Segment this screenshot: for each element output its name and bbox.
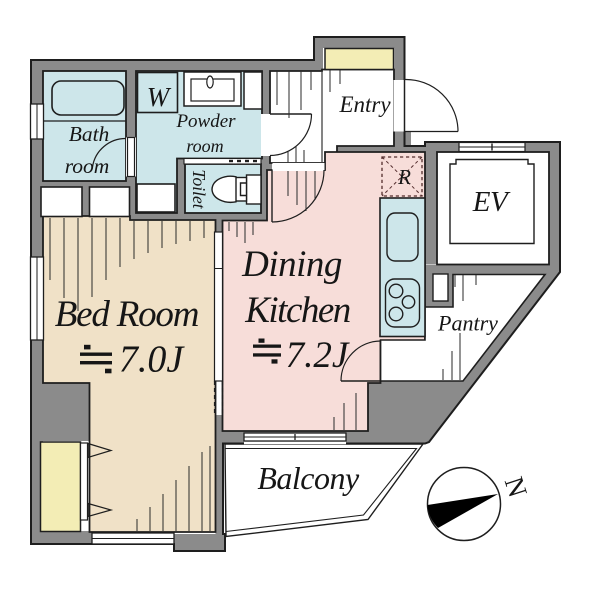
svg-text:7.0J: 7.0J: [119, 339, 186, 381]
svg-text:Dining: Dining: [241, 244, 342, 285]
svg-text:Kitchen: Kitchen: [244, 290, 350, 331]
svg-text:Powder: Powder: [175, 111, 236, 132]
svg-text:room: room: [65, 154, 110, 178]
svg-text:room: room: [186, 136, 223, 156]
svg-text:Bath: Bath: [69, 122, 110, 146]
svg-text:Bed Room: Bed Room: [55, 294, 199, 335]
svg-text:Toilet: Toilet: [189, 169, 209, 209]
svg-text:Entry: Entry: [338, 92, 391, 117]
svg-text:R: R: [397, 165, 411, 189]
svg-text:7.2J: 7.2J: [286, 335, 350, 376]
svg-text:EV: EV: [472, 186, 511, 218]
svg-text:Pantry: Pantry: [437, 311, 498, 336]
svg-text:Balcony: Balcony: [257, 460, 360, 496]
svg-text:W: W: [147, 82, 172, 112]
